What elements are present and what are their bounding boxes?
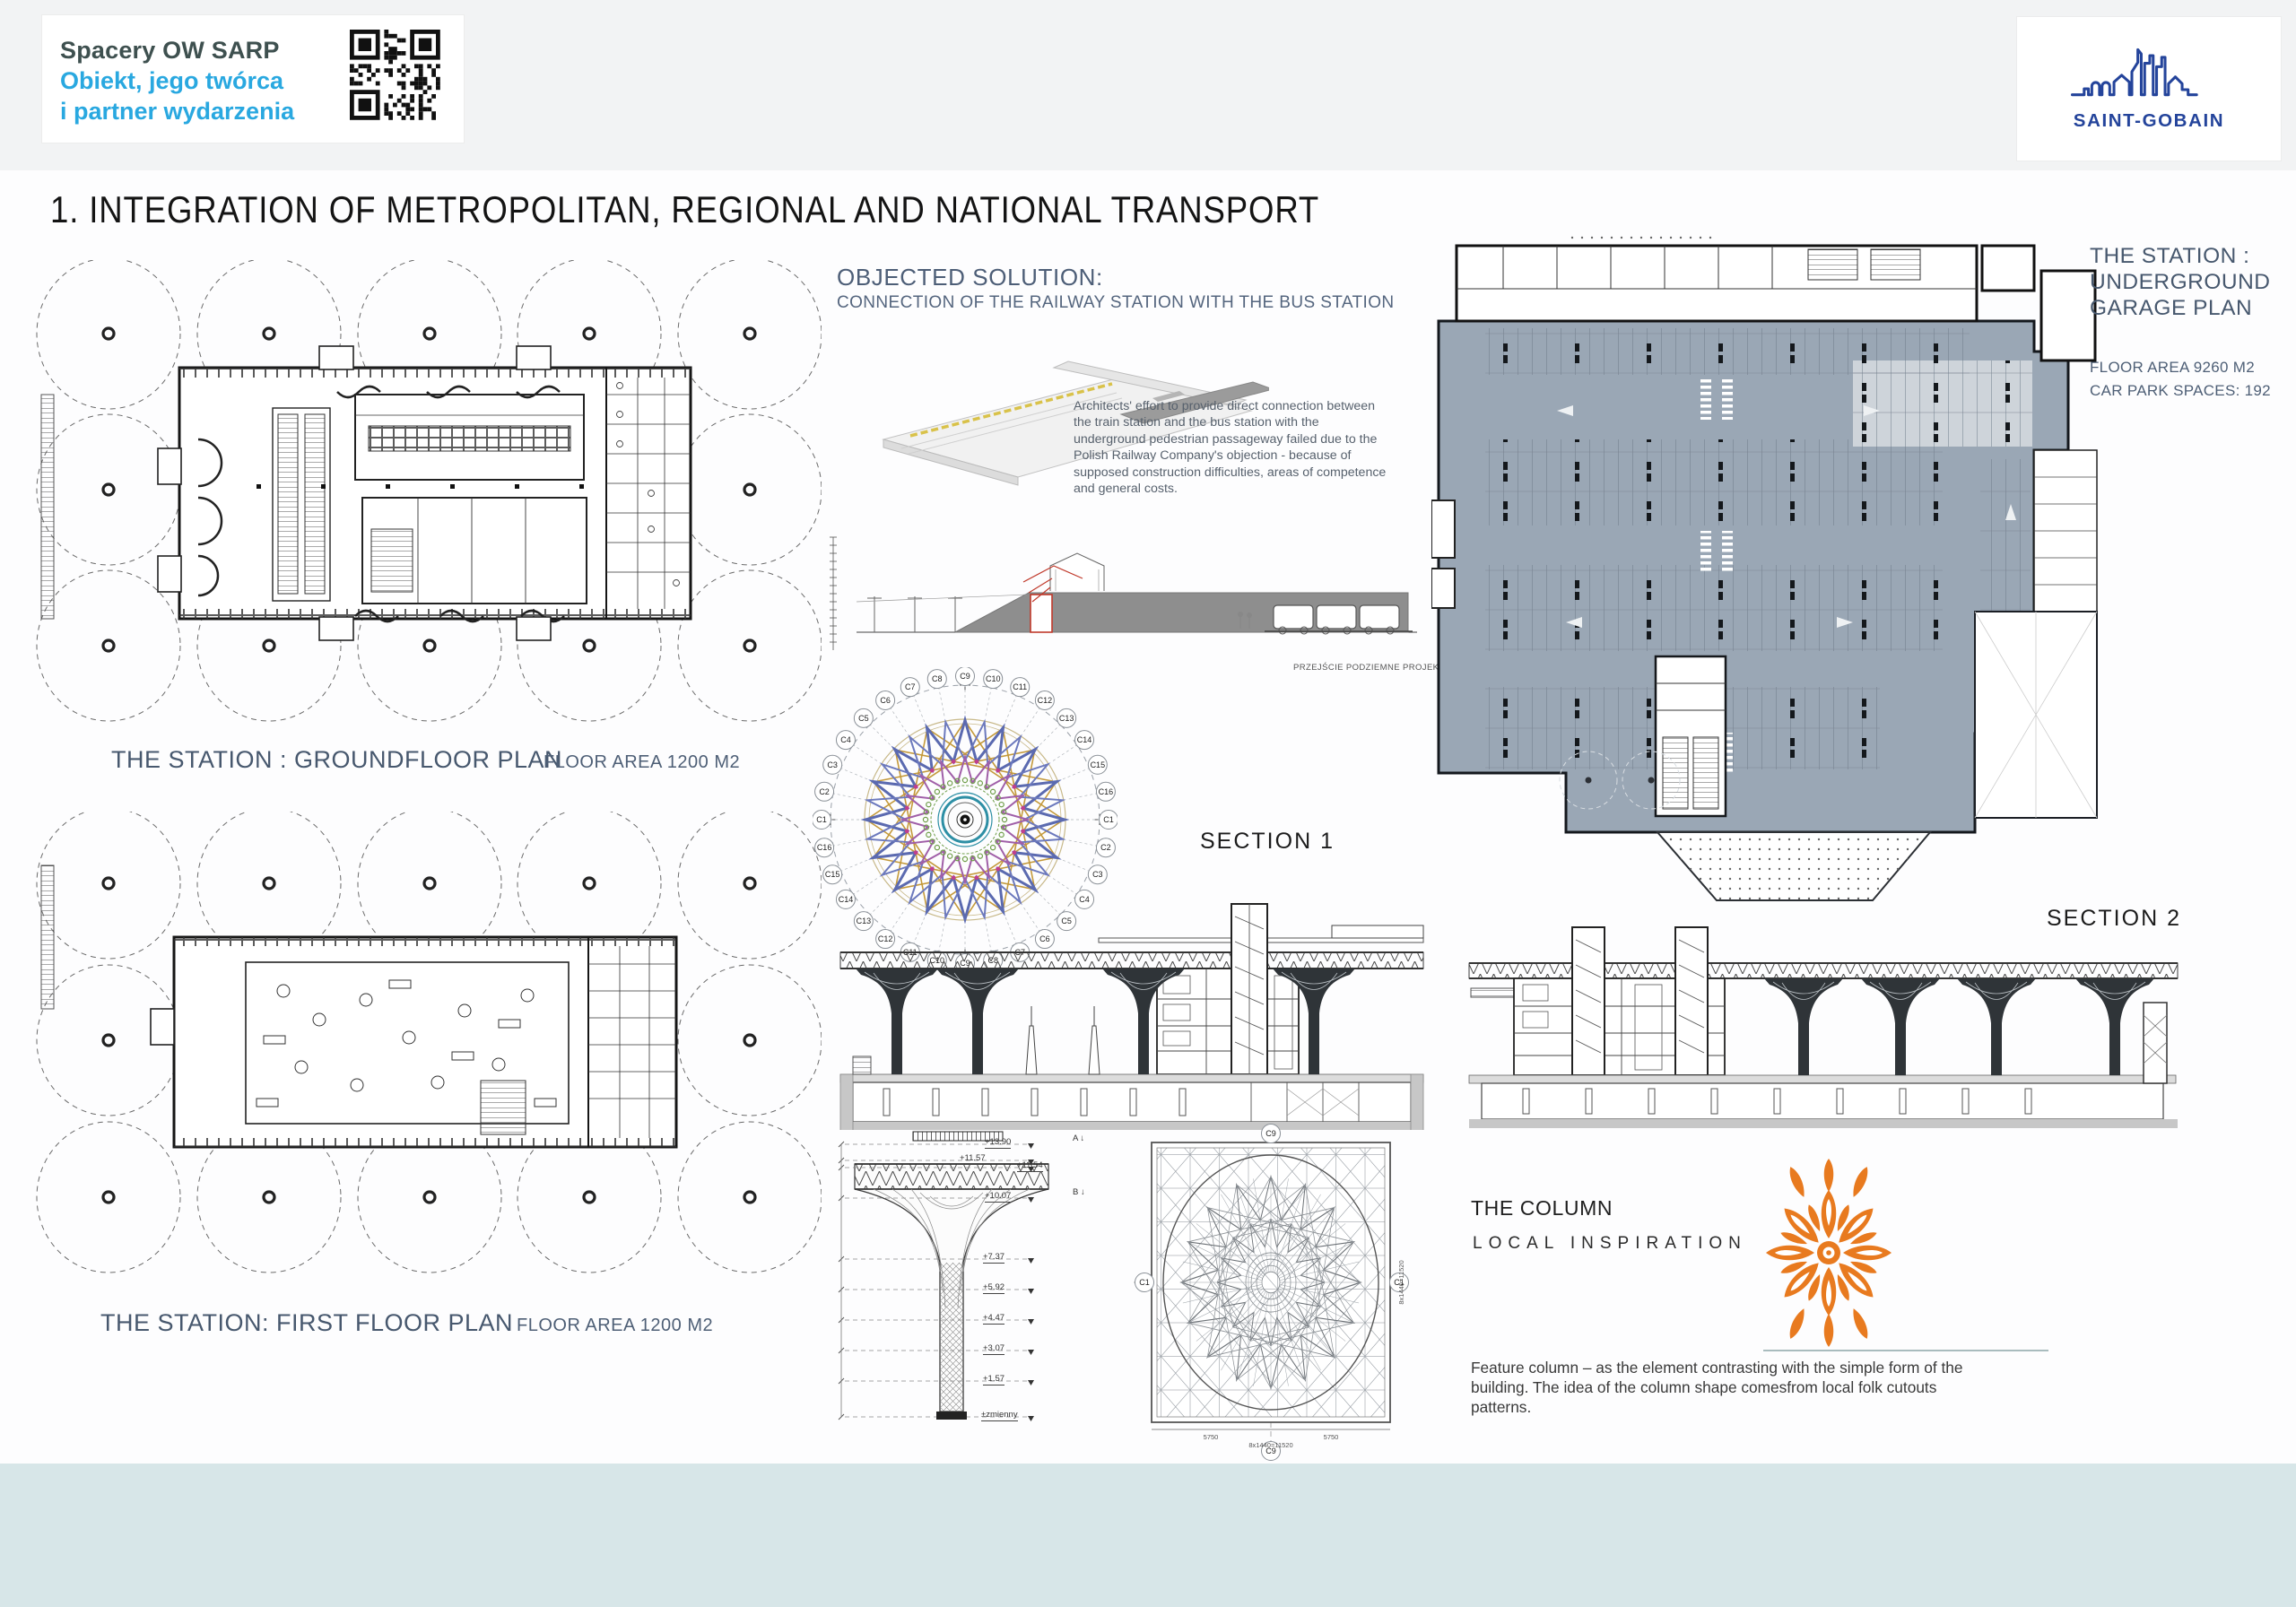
elevation-level-label: +3.07: [983, 1343, 1004, 1355]
the-column-heading: THE COLUMN: [1471, 1196, 1613, 1220]
elevation-level-label: +11.54: [1017, 1160, 1043, 1172]
groundfloor-plan-title: THE STATION : GROUNDFLOOR PLAN: [111, 746, 562, 774]
svg-text:C7: C7: [905, 682, 916, 691]
svg-text:C11: C11: [1013, 682, 1027, 691]
poster-root: Spacery OW SARP Obiekt, jego twórca i pa…: [0, 0, 2296, 1607]
svg-text:C5: C5: [858, 714, 869, 723]
footer-bar: Dworzec Metropolitarny w Lublinie Tremen…: [0, 1464, 2296, 1607]
event-subtitle-2: i partner wydarzenia: [60, 98, 294, 126]
the-column-body: Feature column – as the element contrast…: [1471, 1358, 1998, 1417]
elevation-level-label: +1.57: [983, 1374, 1004, 1385]
elevation-level-label: +5.92: [983, 1282, 1004, 1294]
svg-text:C4: C4: [840, 735, 851, 744]
railway-section-drawing: [821, 525, 1439, 682]
sponsor-wordmark: SAINT-GOBAIN: [2017, 110, 2281, 132]
svg-text:C12: C12: [1038, 696, 1053, 705]
svg-text:C2: C2: [1100, 843, 1111, 852]
event-card: Spacery OW SARP Obiekt, jego twórca i pa…: [41, 14, 465, 143]
svg-text:5750: 5750: [1324, 1433, 1339, 1441]
svg-text:C1: C1: [1139, 1278, 1150, 1287]
elevation-level-label: +11.57: [960, 1153, 986, 1165]
svg-text:C6: C6: [880, 696, 891, 705]
first-floor-plan-drawing: [32, 812, 822, 1305]
svg-text:C9: C9: [1265, 1129, 1276, 1138]
groundfloor-plan-area: FLOOR AREA 1200 M2: [544, 752, 740, 773]
svg-text:C14: C14: [1077, 735, 1092, 744]
svg-text:C15: C15: [825, 870, 840, 879]
svg-text:C1: C1: [816, 815, 827, 824]
first-floor-plan-area: FLOOR AREA 1200 M2: [517, 1316, 713, 1336]
page-title: 1. INTEGRATION OF METROPOLITAN, REGIONAL…: [50, 188, 1319, 231]
divider-line: [1763, 1350, 2048, 1351]
top-band: Spacery OW SARP Obiekt, jego twórca i pa…: [0, 0, 2296, 170]
svg-text:C15: C15: [1091, 760, 1106, 769]
section2-drawing: [1460, 916, 2197, 1130]
saint-gobain-skyline-icon: [2064, 37, 2234, 109]
event-title: Spacery OW SARP: [60, 37, 280, 65]
underground-garage-plan-drawing: [1431, 235, 2099, 906]
svg-text:C16: C16: [817, 843, 832, 852]
elevation-level-label: +4.47: [983, 1313, 1004, 1325]
svg-text:C10: C10: [986, 674, 1001, 683]
svg-text:C3: C3: [1092, 870, 1103, 879]
garage-plan-title-3: GARAGE PLAN: [2090, 296, 2252, 321]
groundfloor-plan-drawing: [32, 260, 822, 744]
svg-text:C1: C1: [1103, 815, 1114, 824]
local-inspiration-subheading: LOCAL INSPIRATION: [1473, 1234, 1747, 1254]
elevation-level-label: +7.37: [983, 1252, 1004, 1264]
section-marker: A ↓: [1073, 1134, 1084, 1143]
column-elevation-detail: +13.90+11.57+11.54+10.07+7.37+5.92+4.47+…: [805, 1128, 1115, 1464]
svg-text:C13: C13: [1059, 714, 1074, 723]
elevation-level-label: +13.90: [985, 1137, 1011, 1149]
qr-code-icon: [350, 30, 440, 120]
objected-solution-subheading: CONNECTION OF THE RAILWAY STATION WITH T…: [837, 293, 1395, 313]
svg-text:8x1440=11520: 8x1440=11520: [1397, 1260, 1405, 1304]
column-elevation-drawing: [805, 1128, 1115, 1464]
svg-text:C16: C16: [1099, 787, 1114, 796]
objected-solution-heading: OBJECTED SOLUTION:: [837, 264, 1103, 291]
objected-solution-body: Architects' effort to provide direct con…: [1074, 398, 1389, 498]
garage-plan-area: FLOOR AREA 9260 M2: [2090, 359, 2255, 377]
svg-text:C9: C9: [960, 672, 970, 681]
garage-plan-title-1: THE STATION :: [2090, 244, 2249, 269]
elevation-level-label: ±zmienny: [981, 1410, 1018, 1421]
canopy-truss-plan-drawing: C1C1C9C9575057508x1440=115208x1440=11520: [1132, 1121, 1412, 1464]
event-subtitle-1: Obiekt, jego twórca: [60, 67, 283, 95]
section-marker: B ↓: [1073, 1187, 1085, 1197]
garage-plan-title-2: UNDERGROUND: [2090, 270, 2271, 295]
garage-plan-spaces: CAR PARK SPACES: 192: [2090, 382, 2271, 400]
svg-text:C2: C2: [819, 787, 830, 796]
sponsor-card: SAINT-GOBAIN: [2016, 16, 2282, 161]
svg-text:8x1440=11520: 8x1440=11520: [1248, 1441, 1292, 1449]
elevation-level-label: +10.07: [985, 1191, 1011, 1203]
folk-cutout-pattern: [1743, 1155, 1915, 1351]
svg-text:5750: 5750: [1204, 1433, 1219, 1441]
svg-text:C8: C8: [932, 674, 943, 683]
section1-label: SECTION 1: [1200, 829, 1335, 855]
first-floor-plan-title: THE STATION: FIRST FLOOR PLAN: [100, 1309, 513, 1337]
svg-text:C3: C3: [827, 760, 838, 769]
section1-drawing: [830, 890, 1448, 1130]
